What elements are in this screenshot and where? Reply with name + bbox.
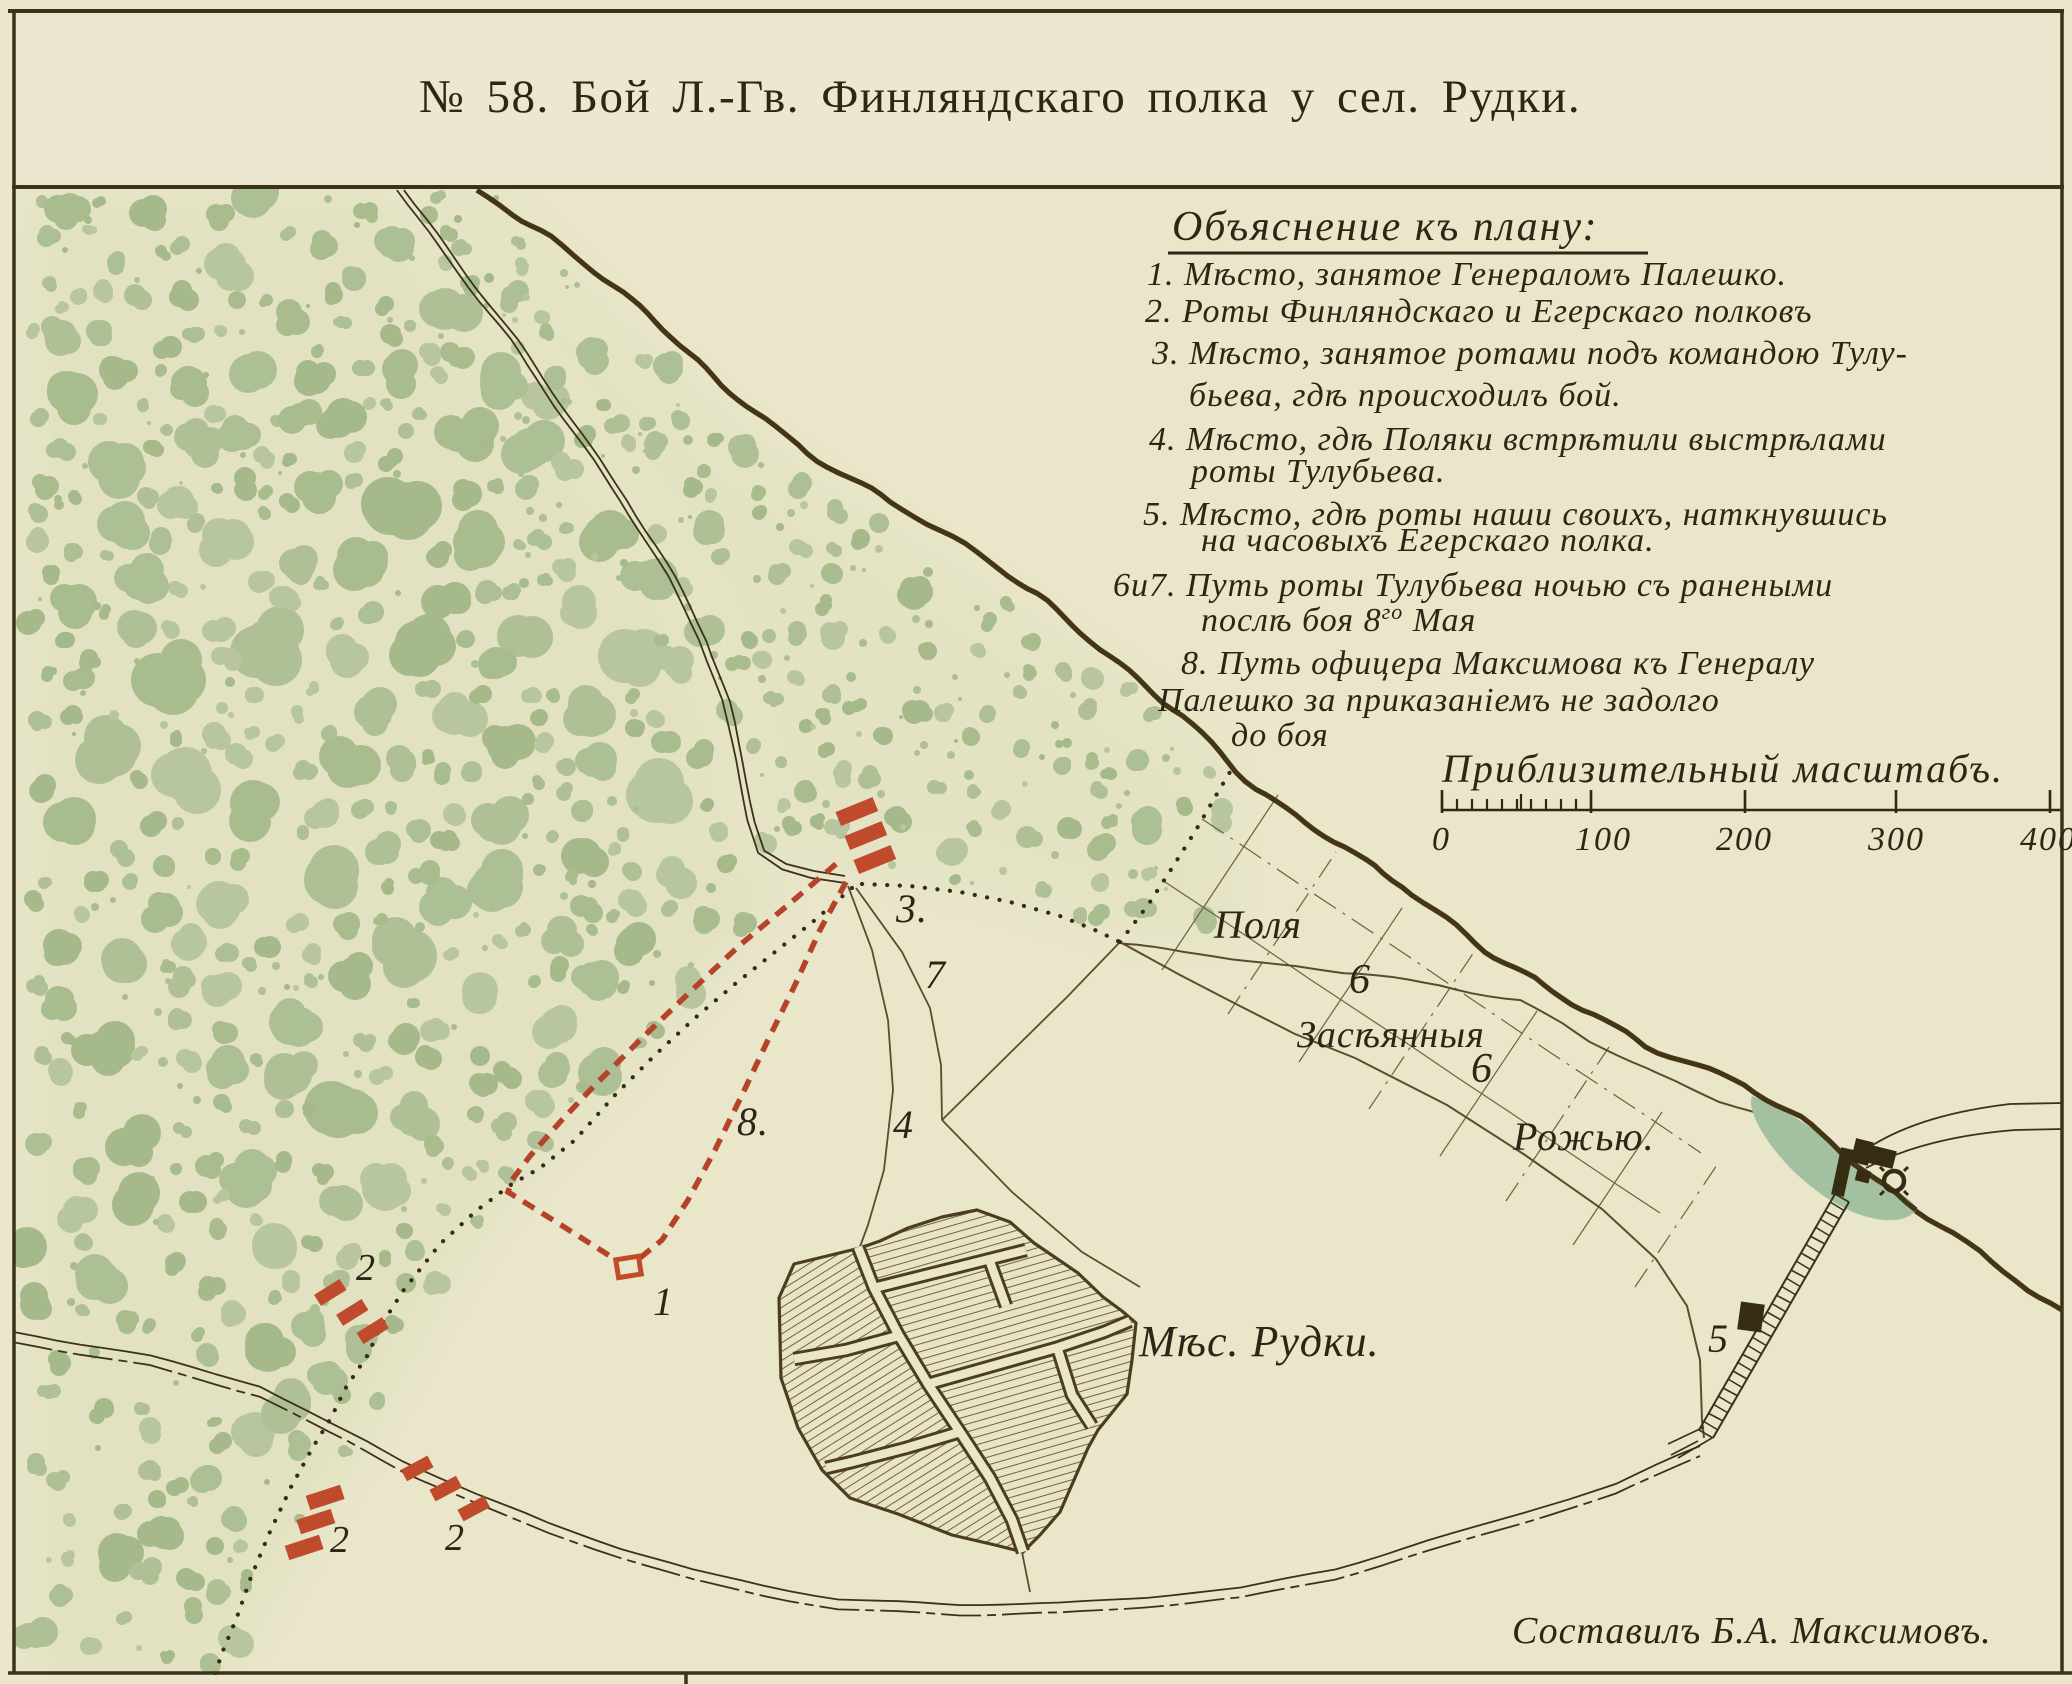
svg-text:до боя: до боя — [1231, 717, 1329, 754]
svg-text:Объяснение къ плану:: Объяснение къ плану: — [1172, 204, 1599, 250]
svg-text:3. Мѣсто, занятое ротами подъ: 3. Мѣсто, занятое ротами подъ командою Т… — [1151, 335, 1908, 372]
svg-text:100: 100 — [1575, 821, 1632, 858]
svg-text:№ 58. Бой Л.-Гв. Финляндска: № 58. Бой Л.-Гв. Финляндскаго полка у се… — [419, 71, 1581, 123]
svg-text:Мѣс. Рудки.: Мѣс. Рудки. — [1138, 1317, 1380, 1366]
svg-text:Рожью.: Рожью. — [1512, 1114, 1655, 1159]
svg-text:6: 6 — [1349, 957, 1371, 1003]
svg-text:300: 300 — [1867, 821, 1925, 858]
svg-text:200: 200 — [1716, 821, 1773, 858]
svg-text:4: 4 — [893, 1102, 914, 1147]
svg-text:400: 400 — [2020, 821, 2072, 858]
svg-text:Поля: Поля — [1213, 902, 1302, 947]
svg-text:роты Тулубьева.: роты Тулубьева. — [1189, 453, 1446, 490]
svg-text:Составилъ Б.А. Максимовъ.: Составилъ Б.А. Максимовъ. — [1512, 1610, 1992, 1652]
svg-text:5: 5 — [1708, 1316, 1729, 1361]
svg-text:6и7. Путь роты Тулубьева ночью: 6и7. Путь роты Тулубьева ночью съ ранены… — [1113, 567, 1833, 604]
svg-text:6: 6 — [1471, 1046, 1493, 1092]
svg-text:послѣ боя 8го Мая: послѣ боя 8го Мая — [1201, 599, 1476, 639]
svg-text:бьева, гдѣ происходилъ бой.: бьева, гдѣ происходилъ бой. — [1189, 377, 1622, 414]
svg-text:1: 1 — [653, 1279, 674, 1324]
svg-text:Палешко за приказаніемъ не за: Палешко за приказаніемъ не задолго — [1157, 682, 1720, 719]
svg-text:3.: 3. — [895, 886, 928, 931]
svg-text:2: 2 — [445, 1517, 465, 1559]
svg-text:2: 2 — [330, 1519, 350, 1561]
svg-text:0: 0 — [1432, 821, 1451, 858]
svg-text:7: 7 — [925, 952, 947, 997]
svg-text:8. Путь офицера Максимова къ Г: 8. Путь офицера Максимова къ Генералу — [1181, 645, 1815, 682]
svg-text:1. Мѣсто, занятое Генераломъ П: 1. Мѣсто, занятое Генераломъ Палешко. — [1147, 256, 1787, 293]
svg-text:Приблизительный масштабъ.: Приблизительный масштабъ. — [1441, 746, 2004, 791]
svg-text:на часовыхъ Егерскаго полка.: на часовыхъ Егерскаго полка. — [1201, 522, 1655, 559]
svg-text:8.: 8. — [737, 1099, 769, 1144]
svg-text:Засѣянныя: Засѣянныя — [1297, 1014, 1485, 1056]
svg-text:2: 2 — [356, 1247, 376, 1289]
svg-text:2. Роты Финляндскаго и Егерска: 2. Роты Финляндскаго и Егерскаго полковъ — [1145, 293, 1813, 330]
